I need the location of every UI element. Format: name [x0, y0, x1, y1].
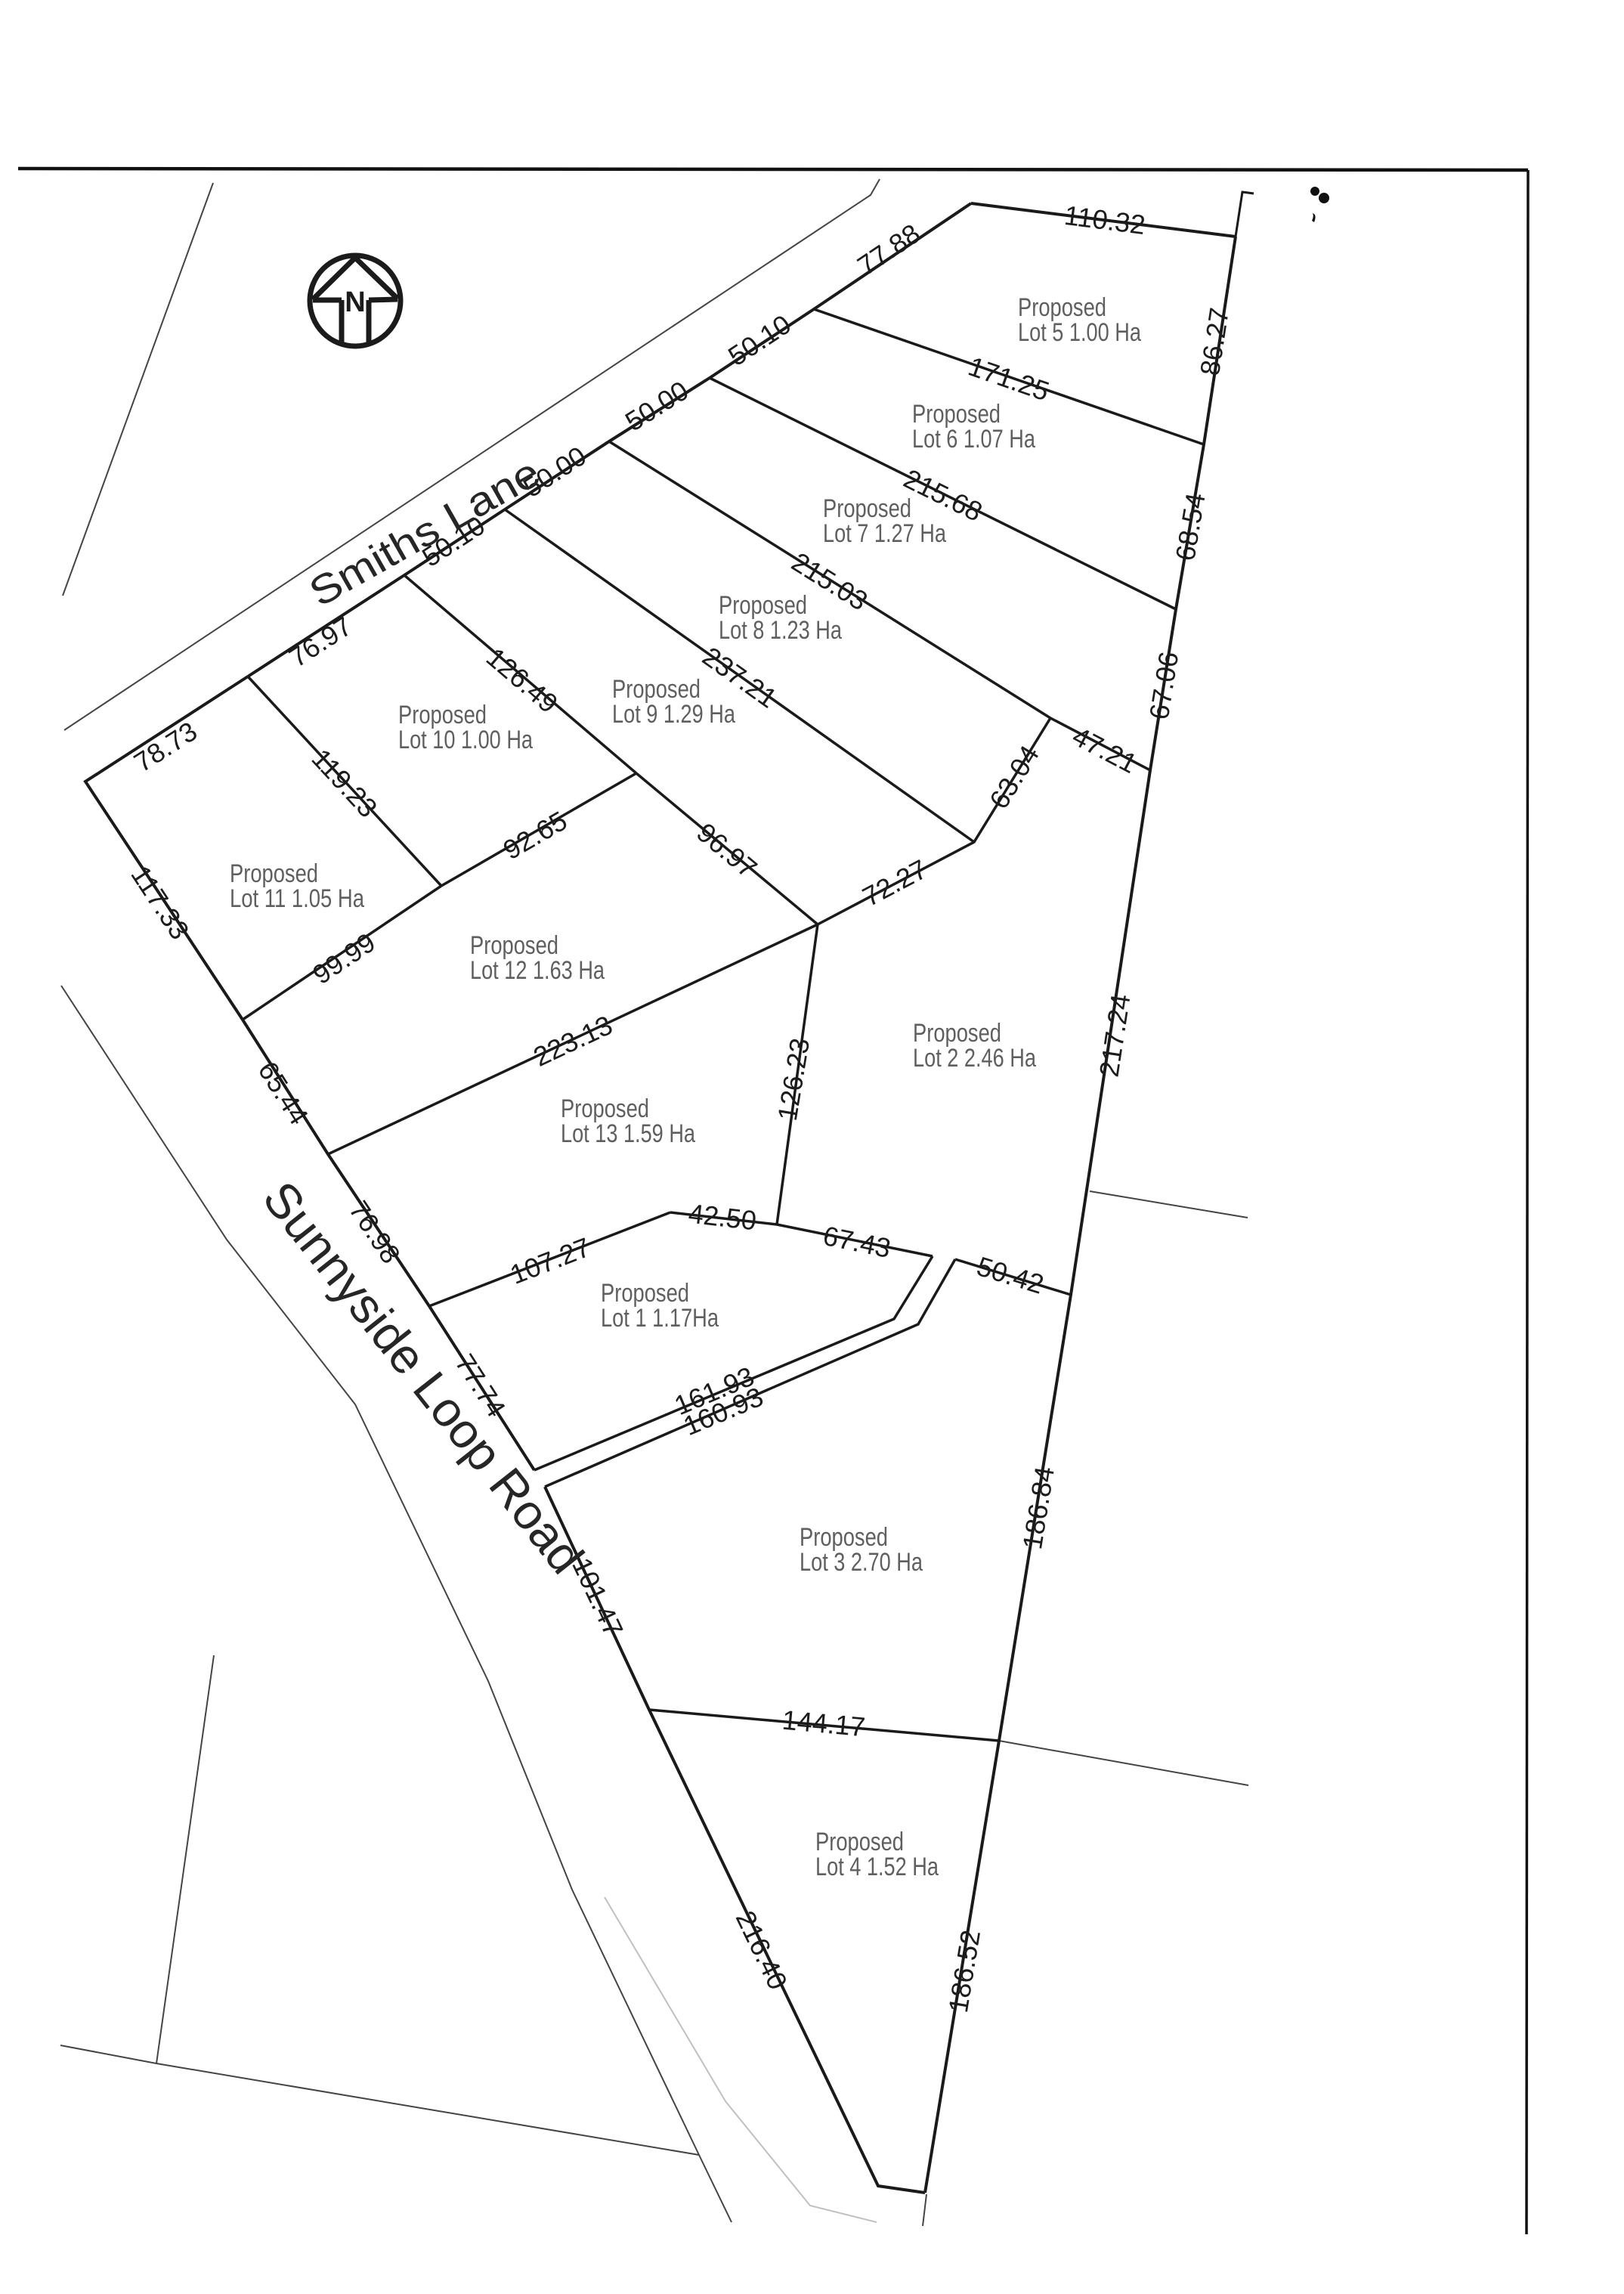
svg-text:Lot 4 1.52 Ha: Lot 4 1.52 Ha — [815, 1853, 939, 1881]
svg-text:N: N — [345, 286, 365, 318]
svg-text:Lot 9 1.29 Ha: Lot 9 1.29 Ha — [612, 700, 735, 729]
svg-text:Lot 6 1.07 Ha: Lot 6 1.07 Ha — [912, 425, 1035, 454]
svg-text:Lot 2 2.46 Ha: Lot 2 2.46 Ha — [913, 1044, 1036, 1073]
svg-text:Lot 11 1.05 Ha: Lot 11 1.05 Ha — [230, 884, 364, 913]
svg-text:Lot 1 1.17Ha: Lot 1 1.17Ha — [601, 1304, 719, 1333]
svg-text:Lot 7 1.27 Ha: Lot 7 1.27 Ha — [823, 519, 946, 548]
svg-text:Lot 10 1.00 Ha: Lot 10 1.00 Ha — [398, 726, 533, 754]
svg-text:Lot 8 1.23 Ha: Lot 8 1.23 Ha — [719, 616, 842, 645]
svg-text:Lot 13 1.59 Ha: Lot 13 1.59 Ha — [561, 1119, 695, 1148]
svg-text:Lot 12 1.63 Ha: Lot 12 1.63 Ha — [470, 956, 605, 985]
svg-text:Lot 5 1.00 Ha: Lot 5 1.00 Ha — [1018, 318, 1141, 347]
svg-text:Lot 3 2.70 Ha: Lot 3 2.70 Ha — [800, 1548, 923, 1577]
